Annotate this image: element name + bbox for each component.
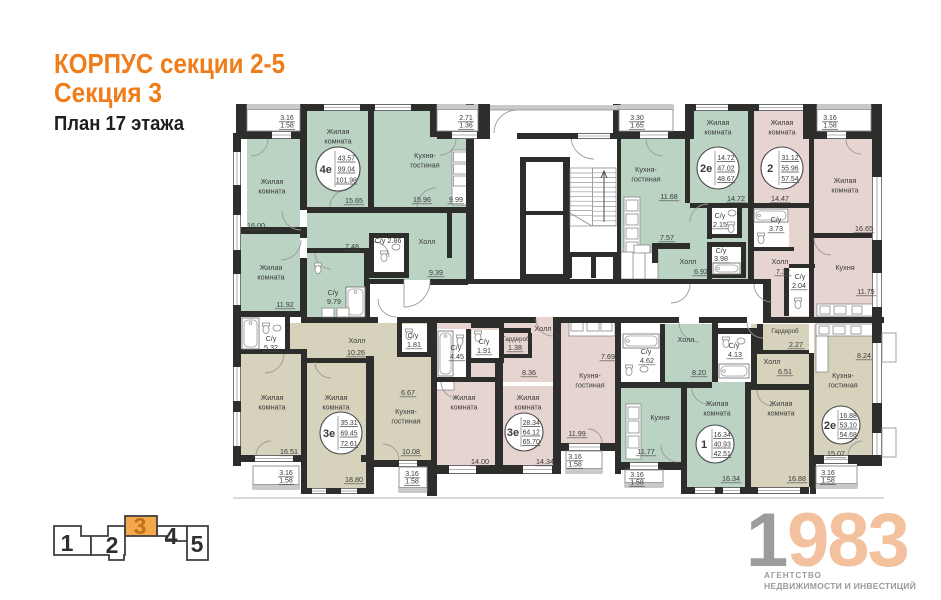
svg-text:14.72: 14.72 — [727, 194, 745, 203]
svg-text:гостиная: гостиная — [828, 381, 857, 390]
svg-text:С/у 2.86: С/у 2.86 — [375, 236, 402, 245]
svg-text:3.16: 3.16 — [823, 115, 837, 122]
svg-text:комната: комната — [324, 137, 351, 146]
svg-text:9.99: 9.99 — [449, 195, 463, 204]
svg-text:4.13: 4.13 — [728, 350, 742, 359]
svg-text:Холл: Холл — [764, 357, 781, 366]
svg-text:комната: комната — [704, 128, 731, 137]
svg-text:35.31: 35.31 — [340, 420, 357, 427]
svg-text:С/у: С/у — [729, 341, 740, 350]
svg-text:2.15: 2.15 — [713, 220, 727, 229]
svg-text:18.80: 18.80 — [345, 475, 363, 484]
svg-text:Жилая: Жилая — [325, 393, 348, 402]
svg-text:Жилая: Жилая — [770, 399, 793, 408]
svg-text:28.34: 28.34 — [523, 420, 540, 427]
svg-text:7.69: 7.69 — [601, 352, 615, 361]
svg-text:Кухня-: Кухня- — [832, 371, 854, 380]
svg-text:16.51: 16.51 — [280, 447, 298, 456]
svg-text:Кухня-: Кухня- — [395, 407, 417, 416]
svg-text:10.08: 10.08 — [402, 447, 420, 456]
svg-text:Кухня: Кухня — [650, 413, 669, 422]
svg-text:11.92: 11.92 — [276, 300, 293, 309]
svg-text:11.77: 11.77 — [637, 447, 654, 456]
svg-text:1.65: 1.65 — [630, 123, 644, 130]
svg-text:72.61: 72.61 — [340, 441, 357, 448]
svg-text:гостиная: гостиная — [410, 161, 439, 170]
svg-text:3е: 3е — [507, 427, 519, 439]
svg-text:Кухня-: Кухня- — [635, 165, 657, 174]
svg-text:53.10: 53.10 — [840, 423, 857, 430]
svg-text:Кухня-: Кухня- — [414, 151, 436, 160]
svg-text:1.58: 1.58 — [279, 478, 293, 485]
svg-text:65.70: 65.70 — [523, 439, 540, 446]
svg-text:комната: комната — [831, 186, 858, 195]
svg-text:31.12: 31.12 — [781, 155, 798, 162]
svg-text:16.00: 16.00 — [247, 221, 265, 230]
svg-text:С/у: С/у — [641, 347, 652, 356]
svg-text:2: 2 — [106, 532, 119, 558]
svg-text:4е: 4е — [320, 164, 332, 176]
svg-text:2е: 2е — [824, 420, 836, 432]
svg-text:99.04: 99.04 — [338, 167, 355, 174]
svg-text:6.92: 6.92 — [694, 267, 708, 276]
svg-text:АГЕНТСТВО: АГЕНТСТВО — [764, 571, 822, 580]
svg-text:9.39: 9.39 — [429, 268, 443, 277]
svg-text:Холл: Холл — [349, 336, 366, 345]
svg-text:3.16: 3.16 — [821, 470, 835, 477]
svg-text:План 17 этажа: План 17 этажа — [54, 113, 185, 135]
svg-text:3.98: 3.98 — [714, 254, 728, 263]
svg-text:комната: комната — [767, 409, 794, 418]
svg-text:15.65: 15.65 — [345, 196, 363, 205]
svg-text:1.91: 1.91 — [477, 346, 491, 355]
svg-text:С/у: С/у — [479, 337, 490, 346]
svg-text:3.73: 3.73 — [769, 224, 783, 233]
svg-text:1.58: 1.58 — [405, 479, 419, 486]
svg-text:комната: комната — [258, 403, 285, 412]
svg-text:6.51: 6.51 — [778, 367, 792, 376]
svg-text:15.96: 15.96 — [413, 195, 431, 204]
svg-text:комната: комната — [450, 403, 477, 412]
svg-text:3: 3 — [134, 513, 147, 539]
svg-text:3.16: 3.16 — [280, 115, 294, 122]
svg-text:3е: 3е — [323, 428, 335, 440]
svg-text:С/у: С/у — [408, 331, 419, 340]
svg-text:16.88: 16.88 — [788, 474, 806, 483]
svg-text:комната: комната — [322, 403, 349, 412]
svg-text:С/у: С/у — [266, 334, 277, 343]
svg-text:1.58: 1.58 — [630, 480, 644, 487]
svg-text:Кухня-: Кухня- — [579, 371, 601, 380]
svg-text:комната: комната — [703, 409, 730, 418]
svg-text:комната: комната — [514, 403, 541, 412]
svg-text:Жилая: Жилая — [834, 176, 857, 185]
svg-text:Гардероб: Гардероб — [771, 328, 799, 335]
svg-text:14.00: 14.00 — [471, 457, 489, 466]
svg-text:16.34: 16.34 — [722, 474, 740, 483]
svg-text:5.32: 5.32 — [264, 343, 278, 352]
svg-text:5: 5 — [191, 531, 204, 557]
svg-text:47.02: 47.02 — [717, 166, 734, 173]
svg-text:3.16: 3.16 — [405, 471, 419, 478]
svg-text:1.36: 1.36 — [459, 123, 473, 130]
svg-text:3.16: 3.16 — [568, 454, 582, 461]
svg-text:2.27: 2.27 — [789, 340, 803, 349]
svg-text:10.26: 10.26 — [347, 348, 365, 357]
svg-text:гостиная: гостиная — [575, 381, 604, 390]
svg-text:1.38: 1.38 — [508, 343, 522, 352]
svg-text:42.51: 42.51 — [714, 451, 731, 458]
svg-text:15.07: 15.07 — [827, 449, 845, 458]
svg-text:1.81: 1.81 — [407, 340, 421, 349]
svg-text:С/у: С/у — [715, 211, 726, 220]
svg-text:Жилая: Жилая — [261, 393, 284, 402]
svg-text:43.57: 43.57 — [338, 156, 355, 163]
svg-text:14.72: 14.72 — [717, 155, 734, 162]
svg-text:48.67: 48.67 — [717, 176, 734, 183]
svg-text:Кухня: Кухня — [835, 263, 854, 272]
svg-text:6.67: 6.67 — [401, 388, 415, 397]
svg-text:1: 1 — [701, 439, 707, 451]
svg-text:С/у: С/у — [451, 343, 462, 352]
svg-text:4: 4 — [165, 523, 178, 549]
svg-text:14.47: 14.47 — [771, 194, 789, 203]
svg-text:КОРПУС секции 2-5: КОРПУС секции 2-5 — [54, 48, 285, 79]
svg-text:Жилая: Жилая — [453, 393, 476, 402]
svg-text:3.16: 3.16 — [279, 470, 293, 477]
svg-text:3.16: 3.16 — [630, 472, 644, 479]
svg-text:Жилая: Жилая — [260, 263, 283, 272]
svg-text:8.24: 8.24 — [857, 351, 871, 360]
svg-text:Гардероб: Гардероб — [502, 336, 530, 343]
svg-text:9.79: 9.79 — [327, 297, 341, 306]
svg-text:Холл: Холл — [419, 237, 436, 246]
svg-text:2е: 2е — [700, 163, 712, 175]
svg-text:Жилая: Жилая — [707, 118, 730, 127]
svg-text:Холл: Холл — [772, 257, 789, 266]
svg-text:Холл: Холл — [535, 324, 552, 333]
svg-text:54.68: 54.68 — [840, 432, 857, 439]
svg-text:НЕДВИЖИМОСТИ И ИНВЕСТИЦИЙ: НЕДВИЖИМОСТИ И ИНВЕСТИЦИЙ — [764, 580, 916, 591]
svg-text:7.48: 7.48 — [345, 242, 359, 251]
svg-text:57.54: 57.54 — [781, 176, 798, 183]
svg-text:69.45: 69.45 — [340, 431, 357, 438]
svg-text:11.99: 11.99 — [568, 429, 585, 438]
svg-text:55.96: 55.96 — [781, 166, 798, 173]
svg-text:Холл: Холл — [680, 257, 697, 266]
svg-text:1.58: 1.58 — [823, 123, 837, 130]
svg-text:комната: комната — [257, 273, 284, 282]
svg-text:Жилая: Жилая — [771, 118, 794, 127]
svg-text:40.93: 40.93 — [714, 442, 731, 449]
svg-text:11.75: 11.75 — [857, 287, 874, 296]
svg-text:Секция 3: Секция 3 — [54, 77, 162, 108]
svg-text:Жилая: Жилая — [327, 127, 350, 136]
svg-text:4.45: 4.45 — [450, 352, 464, 361]
svg-text:Жилая: Жилая — [261, 177, 284, 186]
svg-text:1: 1 — [61, 530, 74, 556]
svg-text:С/у: С/у — [328, 288, 339, 297]
svg-text:1.58: 1.58 — [568, 462, 582, 469]
svg-text:2.04: 2.04 — [792, 281, 806, 290]
svg-text:1.58: 1.58 — [821, 478, 835, 485]
svg-text:64.12: 64.12 — [523, 430, 540, 437]
svg-text:16.65: 16.65 — [855, 224, 873, 233]
svg-text:комната: комната — [768, 128, 795, 137]
svg-text:101.98: 101.98 — [336, 178, 357, 185]
svg-text:7.57: 7.57 — [660, 233, 674, 242]
svg-text:16.34: 16.34 — [714, 432, 731, 439]
svg-text:8.36: 8.36 — [522, 368, 536, 377]
svg-text:гостиная: гостиная — [391, 417, 420, 426]
svg-text:14.34: 14.34 — [536, 457, 554, 466]
svg-text:комната: комната — [258, 187, 285, 196]
svg-text:2: 2 — [767, 163, 773, 175]
svg-text:8.20: 8.20 — [692, 368, 706, 377]
svg-text:С/у: С/у — [771, 215, 782, 224]
svg-text:1.58: 1.58 — [280, 123, 294, 130]
svg-text:7.32: 7.32 — [776, 267, 790, 276]
svg-text:4.62: 4.62 — [640, 356, 654, 365]
svg-text:Холл: Холл — [678, 335, 695, 344]
svg-text:гостиная: гостиная — [631, 175, 660, 184]
svg-text:Жилая: Жилая — [517, 393, 540, 402]
svg-text:11.68: 11.68 — [660, 192, 677, 201]
svg-text:2.71: 2.71 — [459, 115, 473, 122]
svg-text:16.88: 16.88 — [840, 413, 857, 420]
svg-text:3.30: 3.30 — [630, 115, 644, 122]
svg-text:С/у: С/у — [795, 272, 806, 281]
svg-text:Жилая: Жилая — [706, 399, 729, 408]
